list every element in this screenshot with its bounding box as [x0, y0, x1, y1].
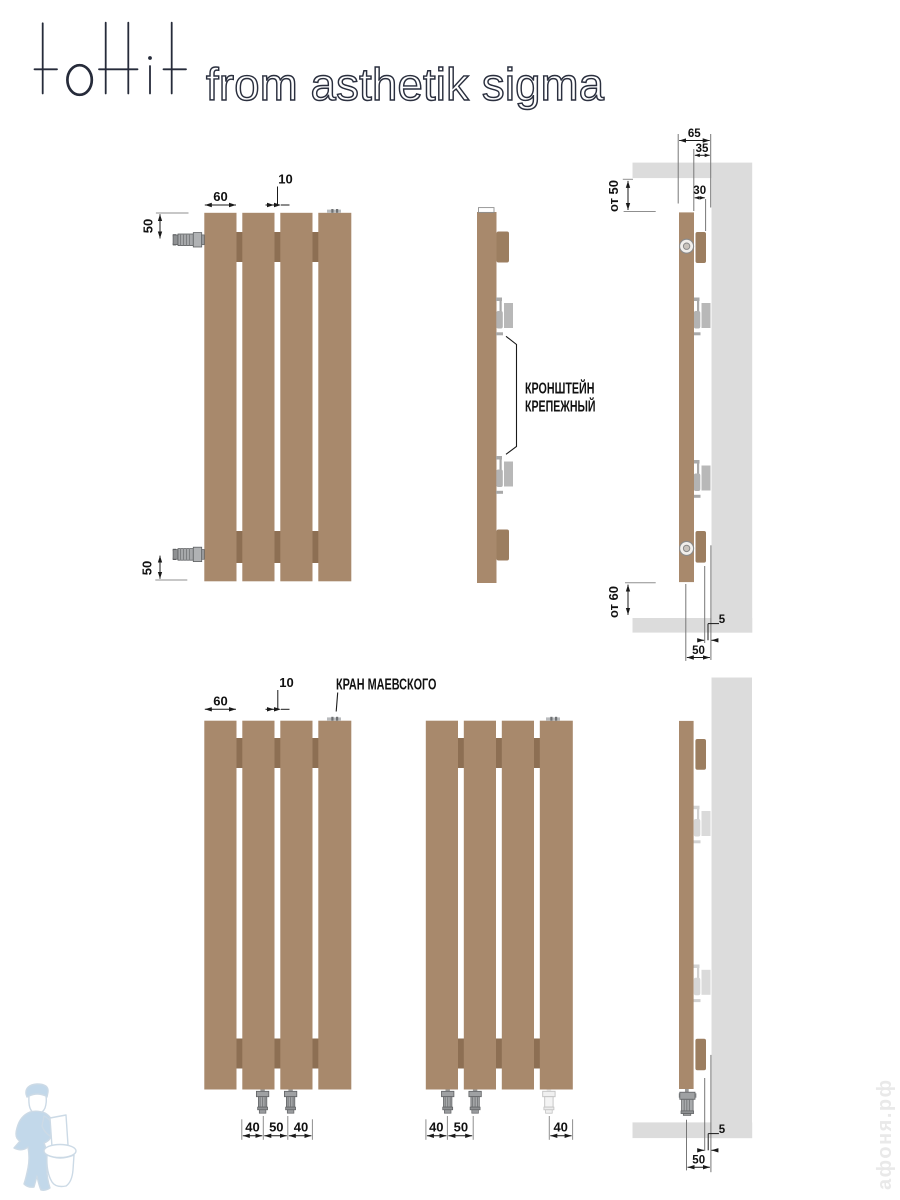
svg-text:40: 40 — [429, 1120, 443, 1135]
svg-text:50: 50 — [692, 1154, 705, 1166]
svg-text:50: 50 — [269, 1120, 283, 1135]
svg-text:10: 10 — [278, 172, 292, 187]
svg-text:60: 60 — [213, 693, 227, 708]
svg-text:30: 30 — [693, 185, 706, 197]
svg-text:КРАН МАЕВСКОГО: КРАН МАЕВСКОГО — [336, 677, 437, 694]
svg-text:10: 10 — [279, 675, 293, 690]
svg-text:5: 5 — [719, 614, 726, 626]
svg-text:афоня.рф: афоня.рф — [874, 1078, 896, 1190]
svg-text:от 60: от 60 — [606, 586, 621, 618]
svg-text:35: 35 — [696, 143, 709, 155]
svg-text:от 50: от 50 — [606, 180, 621, 212]
svg-text:50: 50 — [140, 561, 155, 575]
svg-text:КРЕПЕЖНЫЙ: КРЕПЕЖНЫЙ — [525, 397, 596, 416]
svg-text:40: 40 — [294, 1120, 308, 1135]
svg-text:50: 50 — [692, 645, 705, 657]
svg-text:5: 5 — [719, 1124, 726, 1136]
svg-text:40: 40 — [553, 1120, 567, 1135]
svg-text:from asthetik sigma: from asthetik sigma — [206, 59, 605, 110]
svg-text:50: 50 — [454, 1120, 468, 1135]
svg-text:60: 60 — [213, 189, 227, 204]
svg-text:50: 50 — [141, 219, 156, 233]
svg-text:КРОНШТЕЙН: КРОНШТЕЙН — [525, 379, 595, 398]
svg-text:65: 65 — [688, 128, 701, 140]
svg-text:40: 40 — [245, 1120, 259, 1135]
